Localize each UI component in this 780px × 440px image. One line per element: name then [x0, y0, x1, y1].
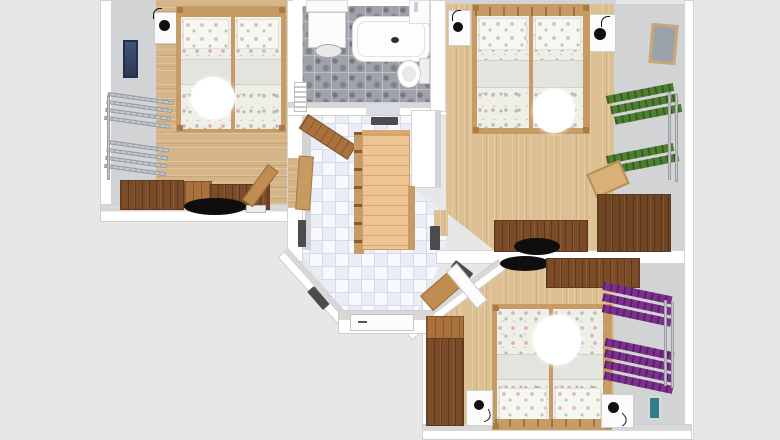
mattress: [235, 17, 281, 129]
bed-footboard: [495, 419, 609, 427]
white-throw: [533, 89, 575, 133]
white-throw: [191, 77, 235, 119]
duvet-fold: [235, 59, 281, 85]
pillow: [499, 388, 547, 420]
bed-post: [493, 305, 499, 311]
doormat-top-right-bedroom: [430, 226, 440, 250]
wall-lamp: [453, 22, 463, 32]
desk-return: [597, 194, 671, 252]
rack-rail: [107, 96, 110, 180]
double-bed-bottom-right: [492, 304, 612, 430]
navy-picture: [123, 40, 138, 78]
pillow: [183, 19, 229, 49]
lamp-cord: [601, 16, 610, 27]
office-chair: [184, 198, 246, 215]
desk: [546, 258, 640, 288]
bed-post: [473, 5, 479, 11]
wardrobe: [426, 338, 464, 426]
toilet-seat: [402, 66, 416, 82]
white-throw: [533, 315, 581, 365]
bathroom-door-opening: [366, 103, 400, 115]
bed-post: [493, 423, 499, 429]
entrance-door-handle: [358, 321, 367, 323]
pillow: [555, 388, 601, 420]
keyboard: [246, 205, 266, 213]
double-bed-top-right: [472, 4, 590, 134]
doormat-bathroom: [371, 117, 398, 125]
office-chair: [500, 256, 550, 271]
wall-lamp: [608, 402, 619, 413]
bed-headboard: [179, 9, 283, 17]
rack-rail: [664, 300, 667, 386]
wall-lamp: [594, 28, 606, 40]
lamp-cord: [452, 10, 461, 21]
floor-plan-render: [0, 0, 780, 440]
doormat-left-bedroom: [298, 220, 306, 247]
pillow: [237, 19, 279, 49]
radiator: [294, 82, 307, 112]
bathroom-shelf: [306, 0, 348, 12]
wall-hallway-bedroom-chunk: [411, 110, 441, 188]
pillow: [535, 18, 581, 50]
bed-post: [473, 127, 479, 133]
outer-wall-right: [684, 0, 694, 440]
toilet-bowl: [397, 60, 421, 88]
bed-post: [279, 125, 285, 131]
stair-rail-right: [408, 186, 415, 250]
bed-post: [583, 5, 589, 11]
double-bed-left: [176, 6, 286, 132]
rack-rail: [671, 302, 674, 388]
sink-faucet: [414, 2, 418, 12]
mattress: [477, 16, 529, 128]
wall-lamp: [159, 20, 170, 31]
sideboard-left: [120, 180, 184, 210]
teal-picture: [648, 396, 661, 420]
lamp-cord: [153, 8, 162, 19]
wall-lamp: [474, 400, 484, 410]
rack-rail: [675, 94, 678, 182]
framed-picture: [648, 23, 678, 65]
duvet-fold: [533, 60, 583, 88]
wall-bathroom-bedroom: [430, 0, 446, 112]
washbasin-cabinet: [308, 12, 346, 48]
rack-rail: [668, 92, 671, 180]
corner-sink: [409, 0, 430, 24]
washbasin: [315, 44, 342, 58]
bed-post: [177, 125, 183, 131]
wardrobe-top: [426, 316, 464, 340]
bed-post: [583, 127, 589, 133]
pillow: [479, 18, 527, 50]
staircase: [362, 134, 410, 250]
bed-headboard: [475, 7, 587, 16]
office-chair: [514, 238, 560, 255]
bed-post: [279, 7, 285, 13]
bed-post: [177, 7, 183, 13]
bathtub-drain: [391, 37, 399, 43]
duvet-fold: [477, 60, 529, 88]
